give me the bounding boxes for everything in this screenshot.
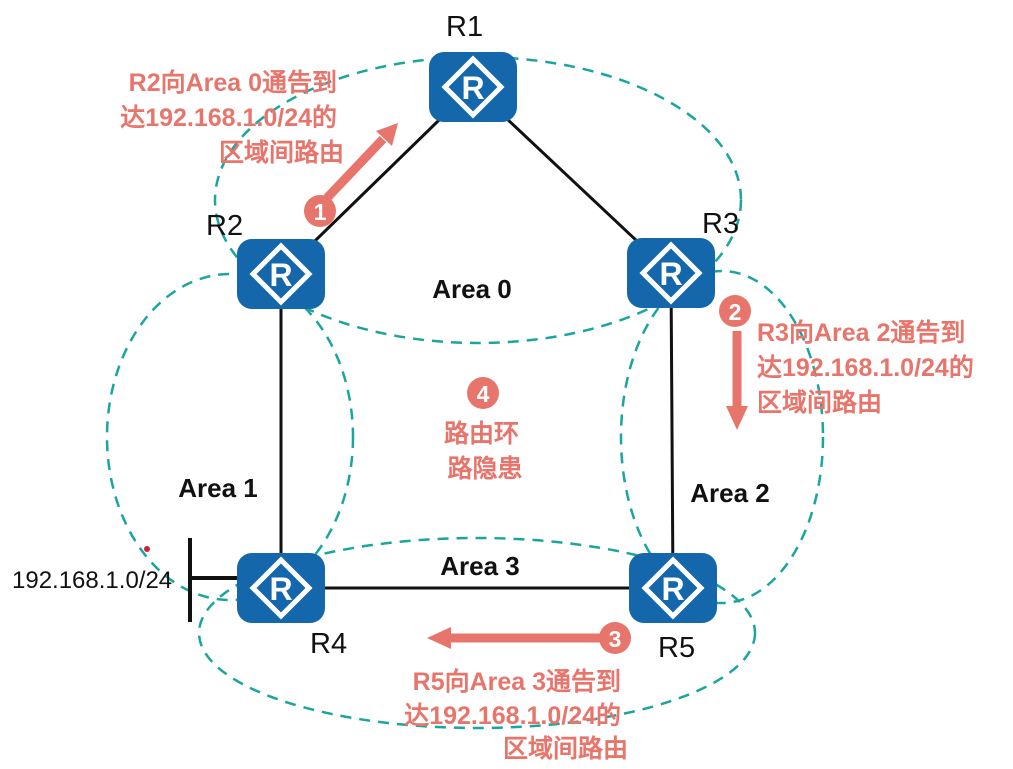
router-r4: R bbox=[237, 553, 325, 623]
label-area1: Area 1 bbox=[178, 473, 258, 503]
network-prefix-label: 192.168.1.0/24 bbox=[12, 567, 172, 594]
badge-step4-number: 4 bbox=[477, 381, 490, 407]
router-icon-letter: R bbox=[269, 571, 292, 607]
badge-step1-number: 1 bbox=[314, 199, 327, 225]
arrow-step3 bbox=[427, 627, 603, 649]
badge-step2-number: 2 bbox=[729, 299, 742, 325]
area1-boundary-ellipse bbox=[107, 274, 353, 600]
ospf-topology-diagram: 192.168.1.0/24 R R R R R R1 R2 R3 R4 R5 … bbox=[0, 0, 1013, 769]
router-r2: R bbox=[237, 239, 325, 309]
arrow-step2 bbox=[726, 331, 748, 430]
label-r4: R4 bbox=[310, 628, 347, 660]
router-icon-letter: R bbox=[461, 70, 484, 106]
label-area0: Area 0 bbox=[432, 274, 512, 304]
router-icon-letter: R bbox=[659, 256, 682, 292]
label-r5: R5 bbox=[658, 632, 695, 664]
router-icon-letter: R bbox=[269, 257, 292, 293]
annotation-step4-text: 路由环 路隐患 bbox=[444, 420, 526, 483]
label-area2: Area 2 bbox=[690, 478, 770, 508]
annotation-step2-text: R3向Area 2通告到 达192.168.1.0/24的 区域间路由 bbox=[757, 318, 981, 417]
link-r3-r5 bbox=[671, 273, 673, 588]
label-area3: Area 3 bbox=[440, 551, 520, 581]
label-r3: R3 bbox=[702, 208, 739, 240]
badge-step4: 4 bbox=[467, 377, 499, 409]
red-dot-artifact bbox=[144, 546, 150, 552]
router-r1: R bbox=[429, 52, 517, 122]
badge-step3: 3 bbox=[599, 622, 631, 654]
router-icon-letter: R bbox=[661, 571, 684, 607]
badge-step3-number: 3 bbox=[609, 626, 622, 652]
label-r2: R2 bbox=[206, 210, 243, 242]
annotation-step1-text: R2向Area 0通告到 达192.168.1.0/24的 区域间路由 bbox=[120, 68, 344, 167]
diagram-canvas: 192.168.1.0/24 R R R R R R1 R2 R3 R4 R5 … bbox=[0, 0, 1013, 769]
badge-step2: 2 bbox=[719, 295, 751, 327]
label-r1: R1 bbox=[446, 11, 483, 43]
badge-step1: 1 bbox=[304, 195, 336, 227]
annotation-step3-text: R5向Area 3通告到 达192.168.1.0/24的 区域间路由 bbox=[404, 667, 628, 763]
router-r5: R bbox=[629, 553, 717, 623]
router-r3: R bbox=[627, 238, 715, 308]
